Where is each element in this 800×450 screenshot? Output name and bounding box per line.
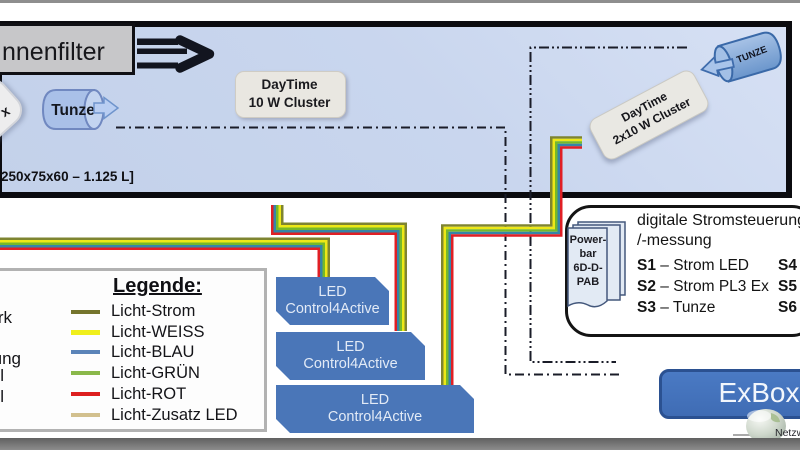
svg-text:PAB: PAB <box>577 276 599 288</box>
svg-text:Power-: Power- <box>570 234 607 246</box>
svg-text:6D-D-: 6D-D- <box>573 262 603 274</box>
svg-text:bar: bar <box>579 248 597 260</box>
